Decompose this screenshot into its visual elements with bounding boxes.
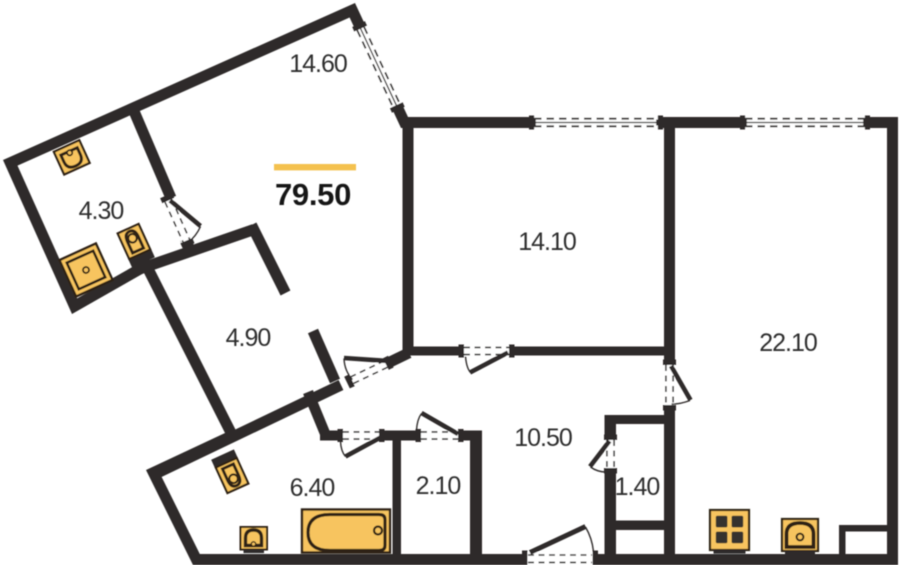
svg-text:79.50: 79.50 [275, 177, 351, 212]
svg-text:14.10: 14.10 [518, 228, 576, 256]
svg-text:2.10: 2.10 [416, 472, 461, 500]
svg-text:14.60: 14.60 [289, 50, 347, 78]
svg-text:4.90: 4.90 [226, 324, 271, 352]
svg-text:4.30: 4.30 [79, 197, 124, 225]
svg-text:1.40: 1.40 [615, 473, 660, 501]
svg-text:22.10: 22.10 [759, 329, 817, 357]
svg-text:10.50: 10.50 [514, 424, 572, 452]
svg-text:6.40: 6.40 [290, 474, 335, 502]
